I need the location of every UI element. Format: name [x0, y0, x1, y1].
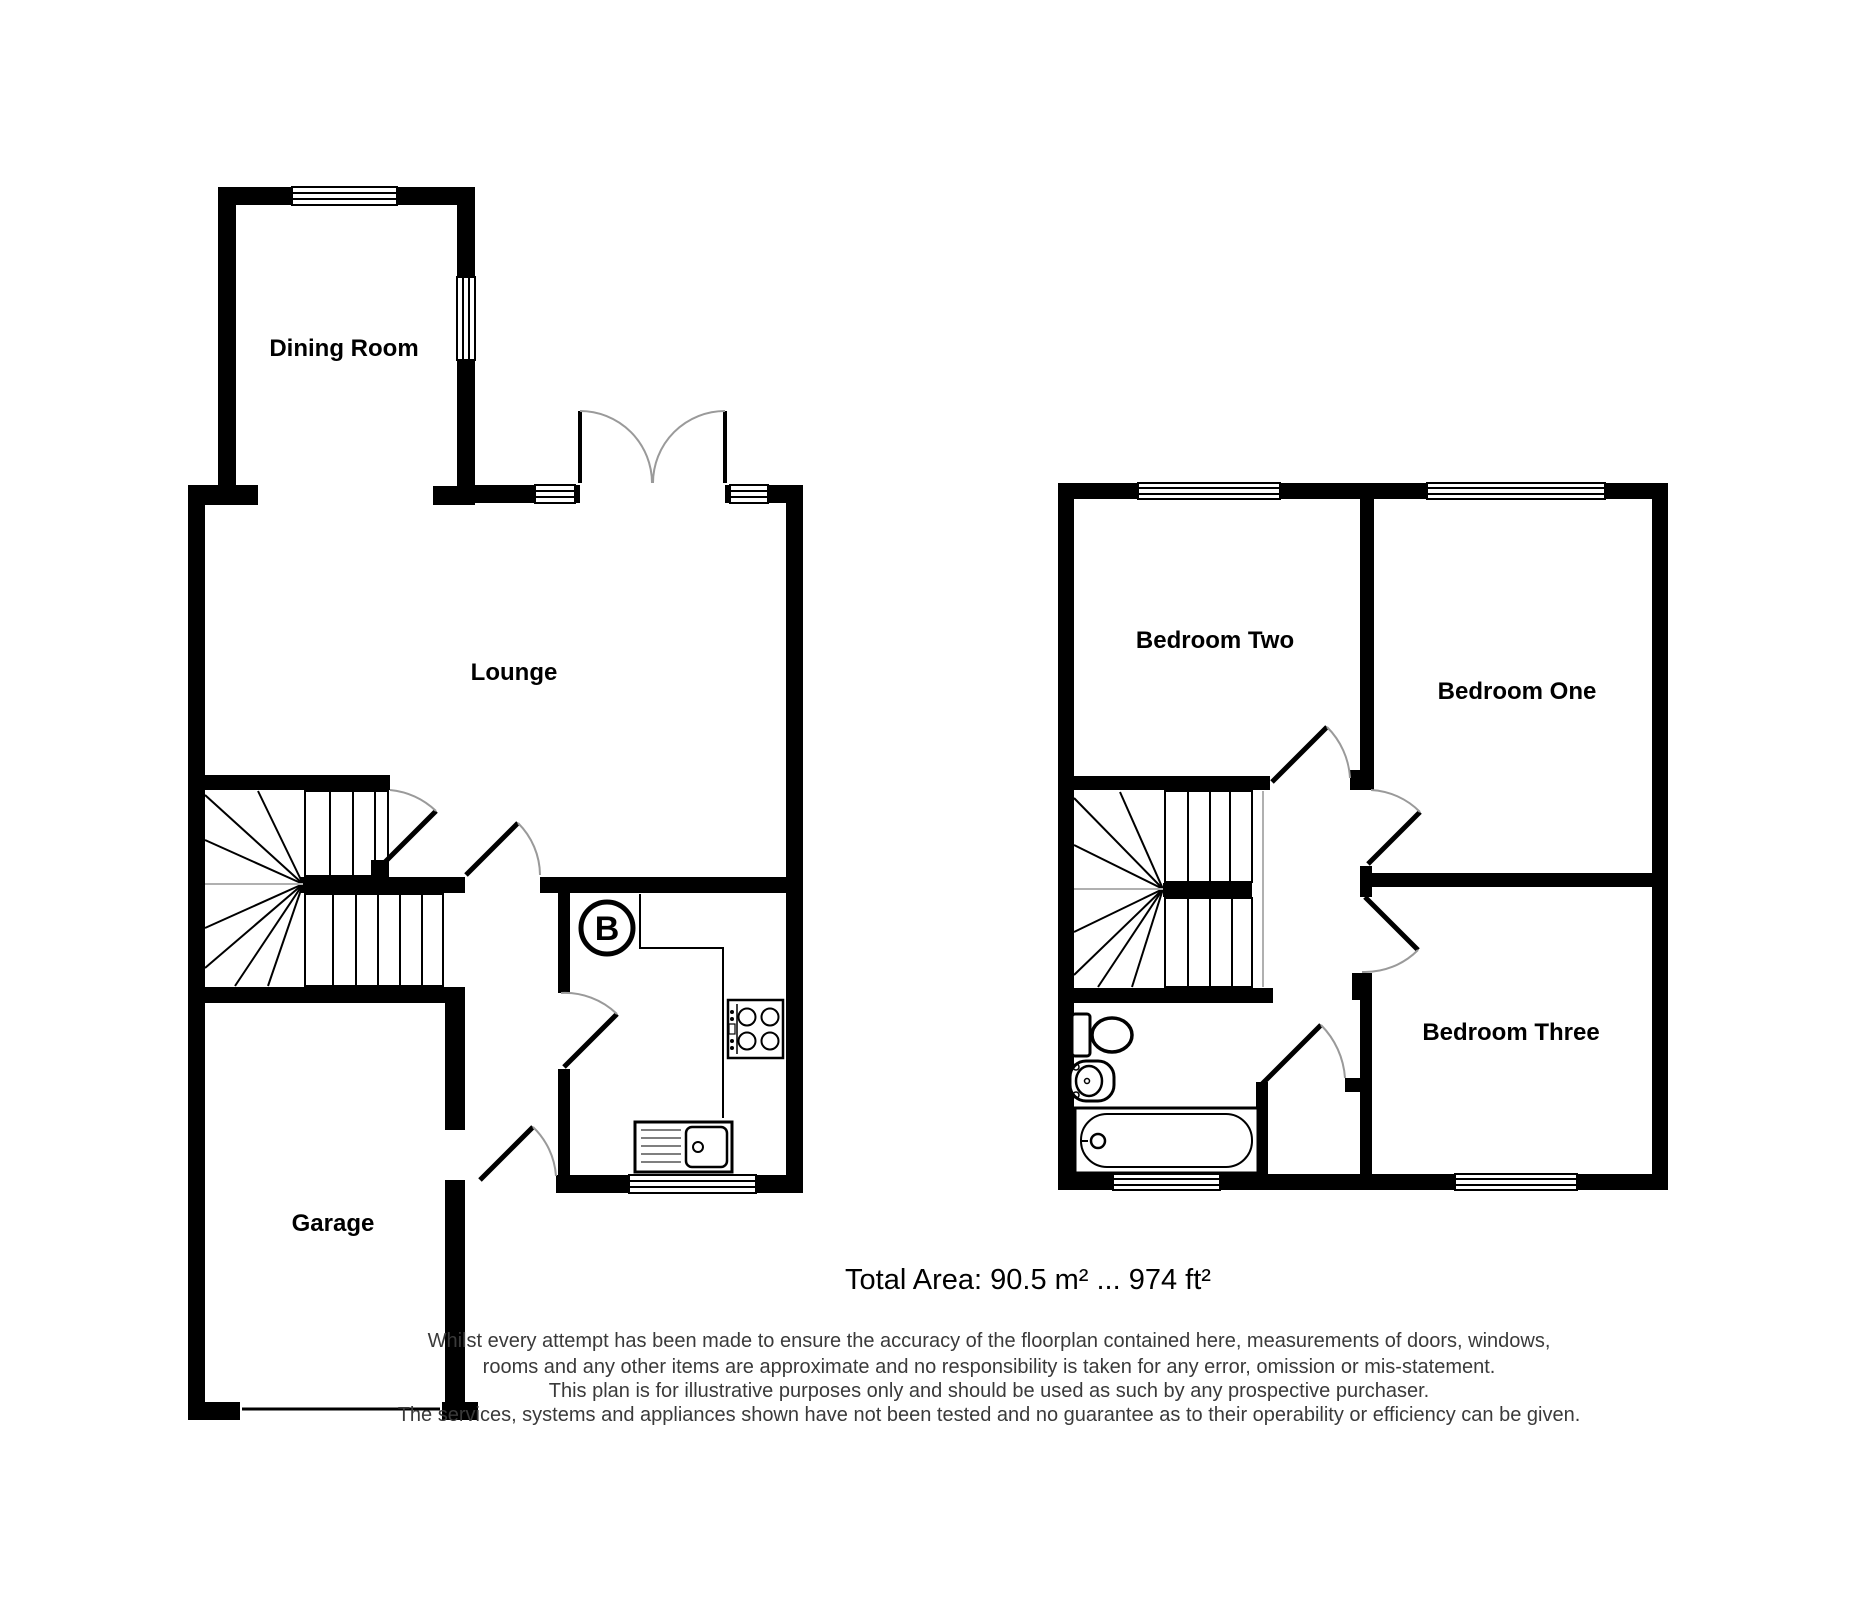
disclaimer-line-1: Whilst every attempt has been made to en…: [428, 1330, 1551, 1352]
hob-icon: [728, 1000, 783, 1058]
kitchen-sink-icon: [635, 1122, 732, 1172]
hall-kitchen-area-door: [466, 823, 540, 875]
boiler-letter: B: [595, 910, 620, 948]
dining-room-label: Dining Room: [269, 335, 418, 362]
toilet-icon: [1072, 1014, 1132, 1056]
bedroom-three-door: [1362, 897, 1418, 972]
dining-room-window-side: [457, 277, 475, 360]
floorplan-page: B Dining Room Lounge Gar: [0, 0, 1856, 1608]
disclaimer-line-3: This plan is for illustrative purposes o…: [549, 1380, 1430, 1402]
bedroom-three-label: Bedroom Three: [1422, 1019, 1599, 1046]
bedroom-three-window: [1455, 1174, 1577, 1190]
first-floor-plan: Bedroom Two Bedroom One Bedroom Three: [1058, 483, 1668, 1190]
bedroom-one-window: [1427, 483, 1605, 499]
patio-doors: [580, 411, 725, 483]
bedroom-one-door: [1368, 790, 1420, 864]
kitchen-window: [629, 1175, 756, 1193]
caption: Total Area: 90.5 m² ... 974 ft² Whilst e…: [398, 1264, 1581, 1426]
bedroom-two-label: Bedroom Two: [1136, 627, 1294, 654]
floorplan-canvas: B Dining Room Lounge Gar: [0, 0, 1856, 1608]
ground-floor-plan: B Dining Room Lounge Gar: [188, 187, 803, 1420]
bedroom-two-door: [1272, 727, 1350, 782]
kitchen-door: [561, 993, 617, 1067]
first-floor-walls: [1058, 483, 1668, 1190]
lounge-window-right: [730, 485, 768, 503]
total-area-label: Total Area: 90.5 m² ... 974 ft²: [845, 1264, 1211, 1296]
garage-side-door: [480, 1127, 556, 1180]
bedroom-one-label: Bedroom One: [1438, 678, 1597, 705]
dining-room-window-top: [292, 187, 397, 205]
bathtub-icon: [1075, 1108, 1258, 1173]
garage-label: Garage: [292, 1210, 375, 1237]
disclaimer-line-4: The services, systems and appliances sho…: [398, 1404, 1581, 1426]
boiler-icon: B: [581, 902, 633, 954]
kitchen-counter: [640, 894, 723, 1118]
ground-floor-walls: [188, 187, 803, 1420]
basin-icon: [1070, 1061, 1114, 1101]
bathroom-door: [1262, 1025, 1345, 1084]
lounge-window-left: [535, 485, 575, 503]
lounge-hall-door: [381, 790, 436, 866]
lounge-label: Lounge: [471, 659, 558, 686]
bathroom-window: [1113, 1174, 1220, 1190]
bedroom-two-window: [1138, 483, 1280, 499]
disclaimer-line-2: rooms and any other items are approximat…: [483, 1356, 1496, 1378]
